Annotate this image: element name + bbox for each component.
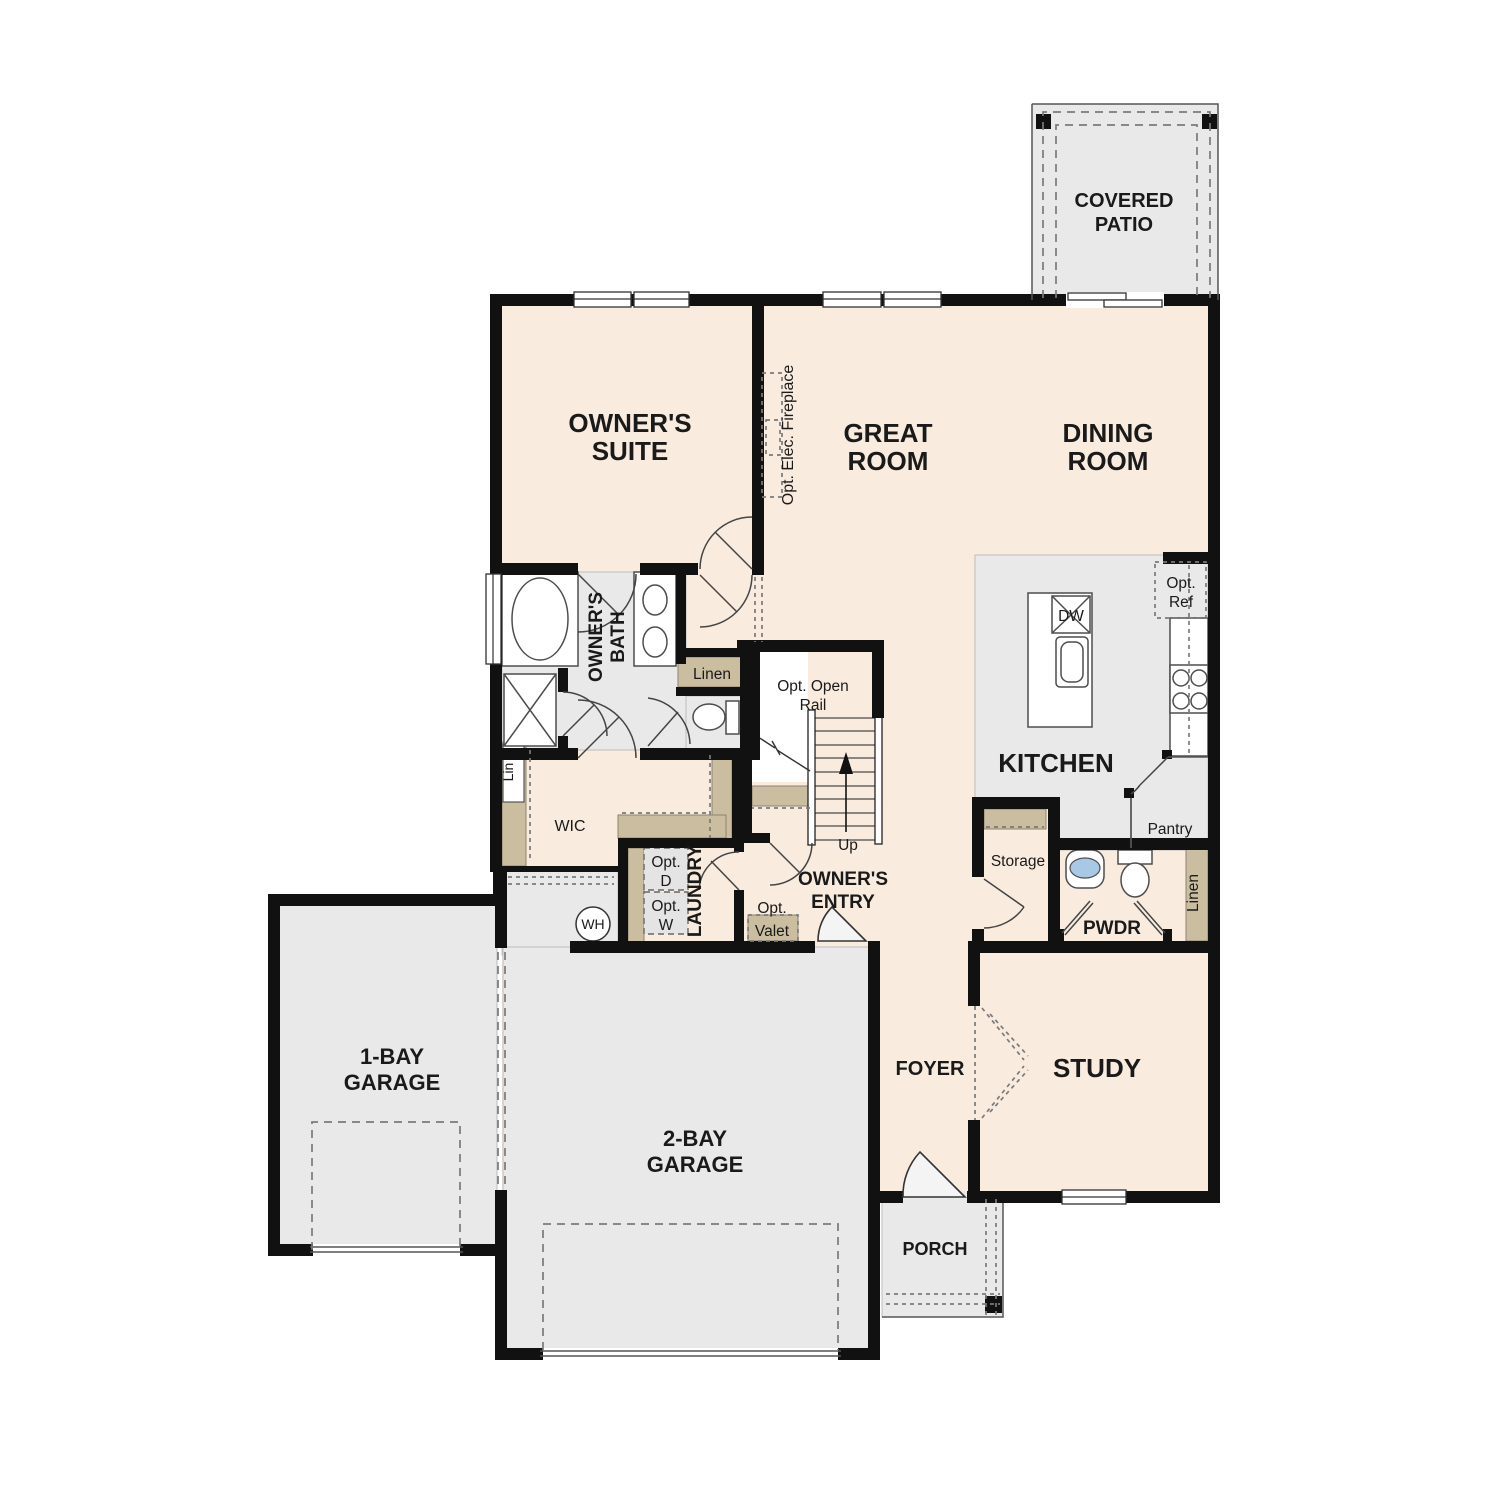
wall-study-w2: [968, 1120, 980, 1203]
label-opt-d-1: Opt.: [651, 854, 680, 871]
label-pantry: Pantry: [1148, 821, 1193, 838]
wall-pwdr-jamb1: [1055, 929, 1064, 942]
label-wic: WIC: [554, 818, 585, 835]
window-study: [1062, 1190, 1126, 1204]
window-great-1: [823, 292, 881, 307]
label-owners-entry-2: ENTRY: [811, 892, 875, 913]
toilet-tank-bath: [726, 701, 739, 734]
window-suite-1: [574, 292, 631, 307]
wall-1bay-w: [268, 894, 280, 1256]
wall-suite-s1: [490, 563, 578, 575]
wall-bath-s1: [490, 748, 578, 760]
label-great-room-1: GREAT: [843, 418, 932, 448]
label-wh: WH: [581, 916, 604, 932]
label-foyer: FOYER: [896, 1058, 965, 1080]
wall-1bay-s2: [460, 1244, 507, 1256]
label-owners-bath-2: BATH: [608, 611, 629, 662]
label-opt-d-2: D: [660, 873, 671, 890]
label-opt-open-rail-2: Rail: [800, 697, 827, 714]
wall-study-w1: [968, 941, 980, 1006]
label-study: STUDY: [1053, 1053, 1141, 1083]
label-2bay-1: 2-BAY: [663, 1126, 727, 1151]
stair-lower-flight: [752, 652, 808, 782]
label-1bay-2: GARAGE: [344, 1070, 441, 1095]
storage-shelf: [984, 809, 1046, 829]
wall-1bay-s1: [268, 1244, 313, 1256]
wall-hall-stub: [752, 833, 770, 843]
label-opt-valet-1: Opt.: [757, 900, 786, 917]
label-lin-wic: Lin: [500, 763, 516, 782]
label-dw: DW: [1058, 608, 1084, 625]
label-up: Up: [838, 837, 858, 854]
wall-east: [1208, 294, 1220, 1203]
label-opt-w-1: Opt.: [651, 898, 680, 915]
laundry-shelf: [628, 848, 644, 942]
pwdr-sink-basin: [1070, 858, 1100, 878]
label-1bay-1: 1-BAY: [360, 1044, 424, 1069]
label-owners-suite-1: OWNER'S: [568, 408, 691, 438]
wall-laundry-w: [618, 838, 628, 953]
stair-rail-left: [808, 710, 815, 845]
floor-plan: COVERED PATIO OWNER'S SUITE GREAT ROOM D…: [0, 0, 1500, 1500]
vanity: [634, 572, 676, 666]
floor-plan-page: COVERED PATIO OWNER'S SUITE GREAT ROOM D…: [0, 0, 1500, 1500]
label-kitchen: KITCHEN: [998, 748, 1114, 778]
label-opt-w-2: W: [659, 917, 674, 934]
stair-rail-right: [875, 714, 882, 844]
wall-study-n: [968, 941, 1220, 953]
label-great-room-2: ROOM: [848, 446, 929, 476]
toilet-tank-pwdr: [1118, 850, 1152, 864]
wall-shower-1: [558, 668, 568, 692]
wall-garage-w-lower: [495, 1190, 507, 1360]
window-tub: [486, 574, 501, 664]
label-owners-bath-1: OWNER'S: [586, 592, 607, 682]
wall-laundry-n: [618, 838, 744, 848]
wall-storage-w1: [972, 797, 984, 877]
wall-garage-n: [570, 941, 815, 953]
label-2bay-2: GARAGE: [647, 1152, 744, 1177]
garage-door-2bay: [540, 1348, 841, 1360]
garage-door-1bay: [310, 1244, 463, 1256]
wall-wic-south-thin: [502, 866, 618, 872]
wall-pwdr-jamb2: [1163, 929, 1172, 942]
wall-garage-e: [868, 941, 880, 1360]
label-storage: Storage: [991, 853, 1045, 870]
wall-stair-e: [872, 640, 884, 718]
wall-garage-s2: [838, 1348, 880, 1360]
window-suite-2: [634, 292, 689, 307]
label-linen-bath: Linen: [693, 666, 731, 683]
wall-stair-n: [737, 640, 884, 652]
label-opt-valet-2: Valet: [755, 923, 790, 940]
wall-kitchen-pwdr: [1048, 838, 1220, 850]
wall-storage-n: [972, 797, 1060, 809]
understair-shelf: [752, 786, 810, 806]
wall-suite-s3: [752, 563, 764, 575]
label-covered-patio-1: COVERED: [1075, 190, 1174, 212]
label-linen-pwdr: Linen: [1185, 874, 1202, 912]
toilet-bowl-pwdr: [1121, 863, 1149, 897]
label-porch: PORCH: [902, 1239, 967, 1259]
label-owners-entry-1: OWNER'S: [798, 869, 888, 890]
label-covered-patio-2: PATIO: [1095, 214, 1153, 236]
label-pwdr: PWDR: [1083, 918, 1141, 939]
wall-linen-bottom: [676, 687, 750, 696]
sliding-door-patio: [1066, 292, 1164, 308]
label-owners-suite-2: SUITE: [592, 436, 669, 466]
wic-shelf-bottom: [618, 815, 726, 838]
wall-stair-w: [740, 640, 752, 843]
label-laundry: LAUNDRY: [685, 845, 706, 938]
label-opt-ref-1: Opt.: [1166, 575, 1195, 592]
wall-shower-2: [558, 736, 568, 748]
wall-suite-s2: [640, 563, 698, 575]
label-opt-elec-fireplace: Opt. Elec. Fireplace: [780, 365, 797, 506]
bathtub: [502, 572, 578, 666]
label-opt-open-rail-1: Opt. Open: [777, 678, 849, 695]
window-great-2: [884, 292, 941, 307]
label-opt-ref-2: Ref: [1169, 594, 1194, 611]
toilet-bowl-bath: [693, 704, 725, 730]
label-dining-room-1: DINING: [1063, 418, 1154, 448]
wall-1bay-n: [268, 894, 507, 906]
label-dining-room-2: ROOM: [1068, 446, 1149, 476]
